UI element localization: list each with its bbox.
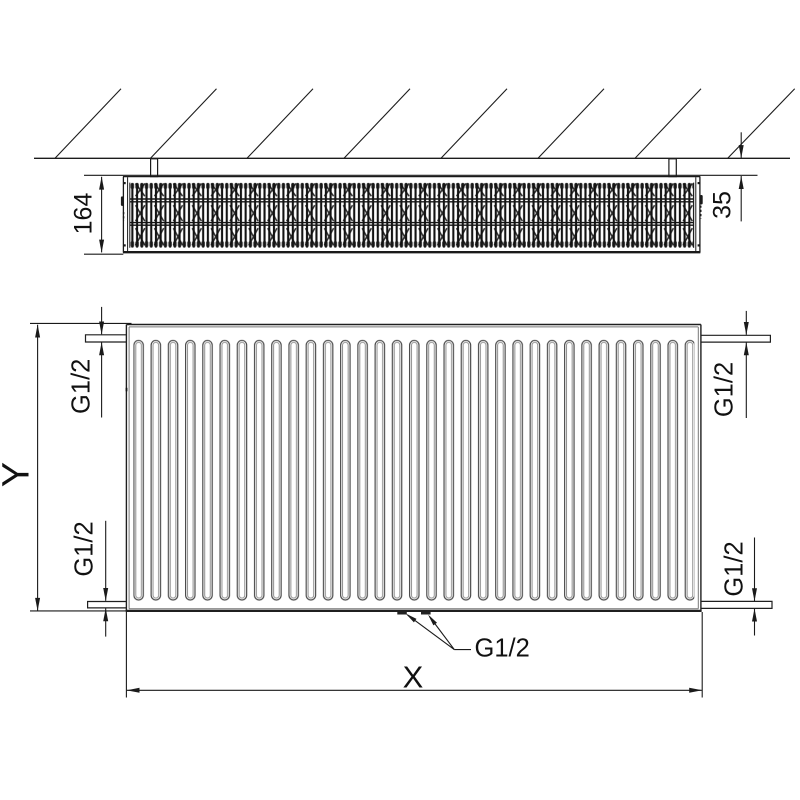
svg-text:35: 35 [709,191,737,219]
svg-text:X: X [403,660,424,695]
svg-text:G1/2: G1/2 [721,541,749,596]
svg-text:G1/2: G1/2 [70,521,98,576]
svg-text:G1/2: G1/2 [68,359,96,414]
svg-text:Y: Y [0,462,38,487]
svg-text:164: 164 [70,193,98,235]
svg-text:G1/2: G1/2 [475,635,530,663]
svg-text:G1/2: G1/2 [711,362,739,417]
